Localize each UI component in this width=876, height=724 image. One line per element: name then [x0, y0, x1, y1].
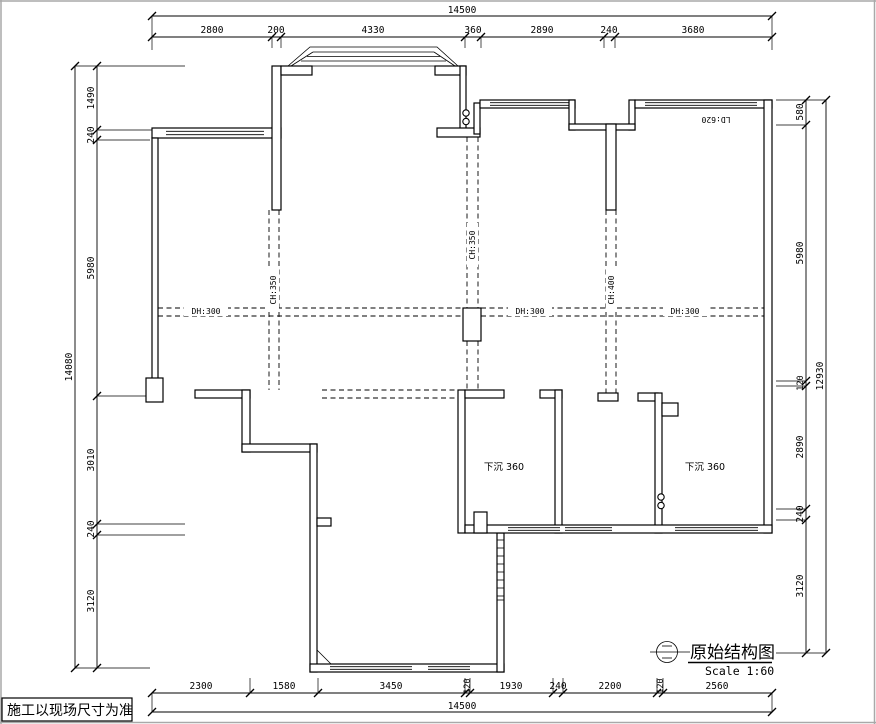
- beam-label-ch350-mid: CH:350: [468, 230, 477, 259]
- bay-window: [281, 47, 466, 75]
- window-top-left: [166, 128, 264, 138]
- dim-bottom-7: 2200: [599, 681, 622, 692]
- floorplan-canvas: 14500 2800 200 4330 360 2890 240 3680: [0, 0, 876, 724]
- dim-left-6: 3120: [86, 589, 97, 612]
- pipe-riser-icon: [658, 502, 664, 508]
- dim-bottom-3: 3450: [380, 681, 403, 692]
- window-lower-vertical: [497, 540, 504, 600]
- dim-right-total: 12930: [815, 361, 826, 390]
- dim-left-2: 240: [86, 126, 97, 143]
- dim-bottom-total: 14500: [448, 701, 477, 712]
- column-left-end: [146, 378, 163, 402]
- window-top-right-a: [490, 100, 570, 108]
- dim-left-3: 5980: [86, 256, 97, 279]
- dim-left-1: 1490: [86, 86, 97, 109]
- dim-left-total: 14080: [64, 352, 75, 381]
- dim-left-5: 240: [86, 520, 97, 537]
- window-bottom-right: [428, 664, 470, 672]
- pipe-risers: [463, 110, 664, 509]
- dimension-top-extensions: [152, 16, 772, 50]
- beam-label-ch400: CH:400: [607, 275, 616, 304]
- dim-top-3: 4330: [362, 25, 385, 36]
- dim-top-7: 3680: [682, 25, 705, 36]
- beam-label-dh300-mid: DH:300: [516, 307, 545, 316]
- dim-top-total: 14500: [448, 5, 477, 16]
- dim-right-6: 3120: [795, 574, 806, 597]
- dimension-top: 14500 2800 200 4330 360 2890 240 3680: [148, 5, 776, 50]
- beam-lines: [158, 137, 764, 398]
- site-note: 施工以现场尺寸为准: [7, 703, 133, 719]
- title-block: 原始结构图 Scale 1:60: [650, 642, 775, 679]
- dim-bottom-9: 2560: [706, 681, 729, 692]
- dimension-right: 580 5980 120 2890 240 3120 12930: [776, 96, 830, 657]
- column-center: [463, 308, 481, 341]
- note-box: 施工以现场尺寸为准: [2, 698, 133, 721]
- pipe-riser-icon: [463, 118, 469, 124]
- dim-bottom-8: 120: [656, 678, 666, 693]
- wall-stub: [317, 518, 331, 526]
- dim-top-1: 2800: [201, 25, 224, 36]
- drawing-title: 原始结构图: [690, 643, 775, 663]
- walls: [146, 47, 772, 672]
- dim-bottom-4: 120: [463, 678, 473, 693]
- dim-bottom-1: 2300: [190, 681, 213, 692]
- beam-labels: DH:300 DH:300 DH:300 CH:350 CH:350 CH:40…: [184, 223, 707, 316]
- dim-top-5: 2890: [531, 25, 554, 36]
- window-top-right-b: [645, 100, 757, 108]
- dimension-bottom: 2300 1580 3450 120 1930 240 2200 120 256…: [148, 678, 776, 716]
- window-lower-right-1: [508, 525, 560, 533]
- dimension-left-extensions: [75, 66, 185, 668]
- dim-bottom-5: 1930: [500, 681, 523, 692]
- beam-label-dh300-left: DH:300: [192, 307, 221, 316]
- dimension-left: 14080 1490 240 5980 3010 240 3120: [64, 62, 185, 672]
- window-lower-right-2: [565, 525, 612, 533]
- dim-right-3: 120: [796, 375, 806, 390]
- pipe-riser-icon: [658, 494, 664, 500]
- label-ld620: LD:620: [701, 115, 730, 124]
- window-lower-right-3: [675, 525, 758, 533]
- section-symbol-icon: [650, 642, 690, 663]
- beam-label-dh300-right: DH:300: [671, 307, 700, 316]
- dim-right-4: 2890: [795, 435, 806, 458]
- dim-top-6: 240: [600, 25, 617, 36]
- pipe-riser-icon: [463, 110, 469, 116]
- dim-bottom-2: 1580: [273, 681, 296, 692]
- dim-left-4: 3010: [86, 448, 97, 471]
- column-mid-right: [662, 403, 678, 416]
- label-sunken-right: 下沉 360: [685, 462, 725, 473]
- dim-right-5: 240: [795, 505, 806, 522]
- label-sunken-left: 下沉 360: [484, 462, 524, 473]
- dim-top-2: 200: [267, 25, 284, 36]
- dim-right-1: 580: [795, 103, 806, 120]
- corner-chamfer: [317, 650, 331, 664]
- floorplan-drawing: 14500 2800 200 4330 360 2890 240 3680: [0, 0, 876, 724]
- dim-bottom-6: 240: [549, 681, 566, 692]
- beam-label-ch350-left: CH:350: [269, 275, 278, 304]
- dim-top-4: 360: [464, 25, 481, 36]
- drawing-scale: Scale 1:60: [705, 664, 774, 678]
- dim-right-2: 5980: [795, 241, 806, 264]
- door-stub: [474, 512, 487, 533]
- window-bottom-left: [330, 664, 412, 672]
